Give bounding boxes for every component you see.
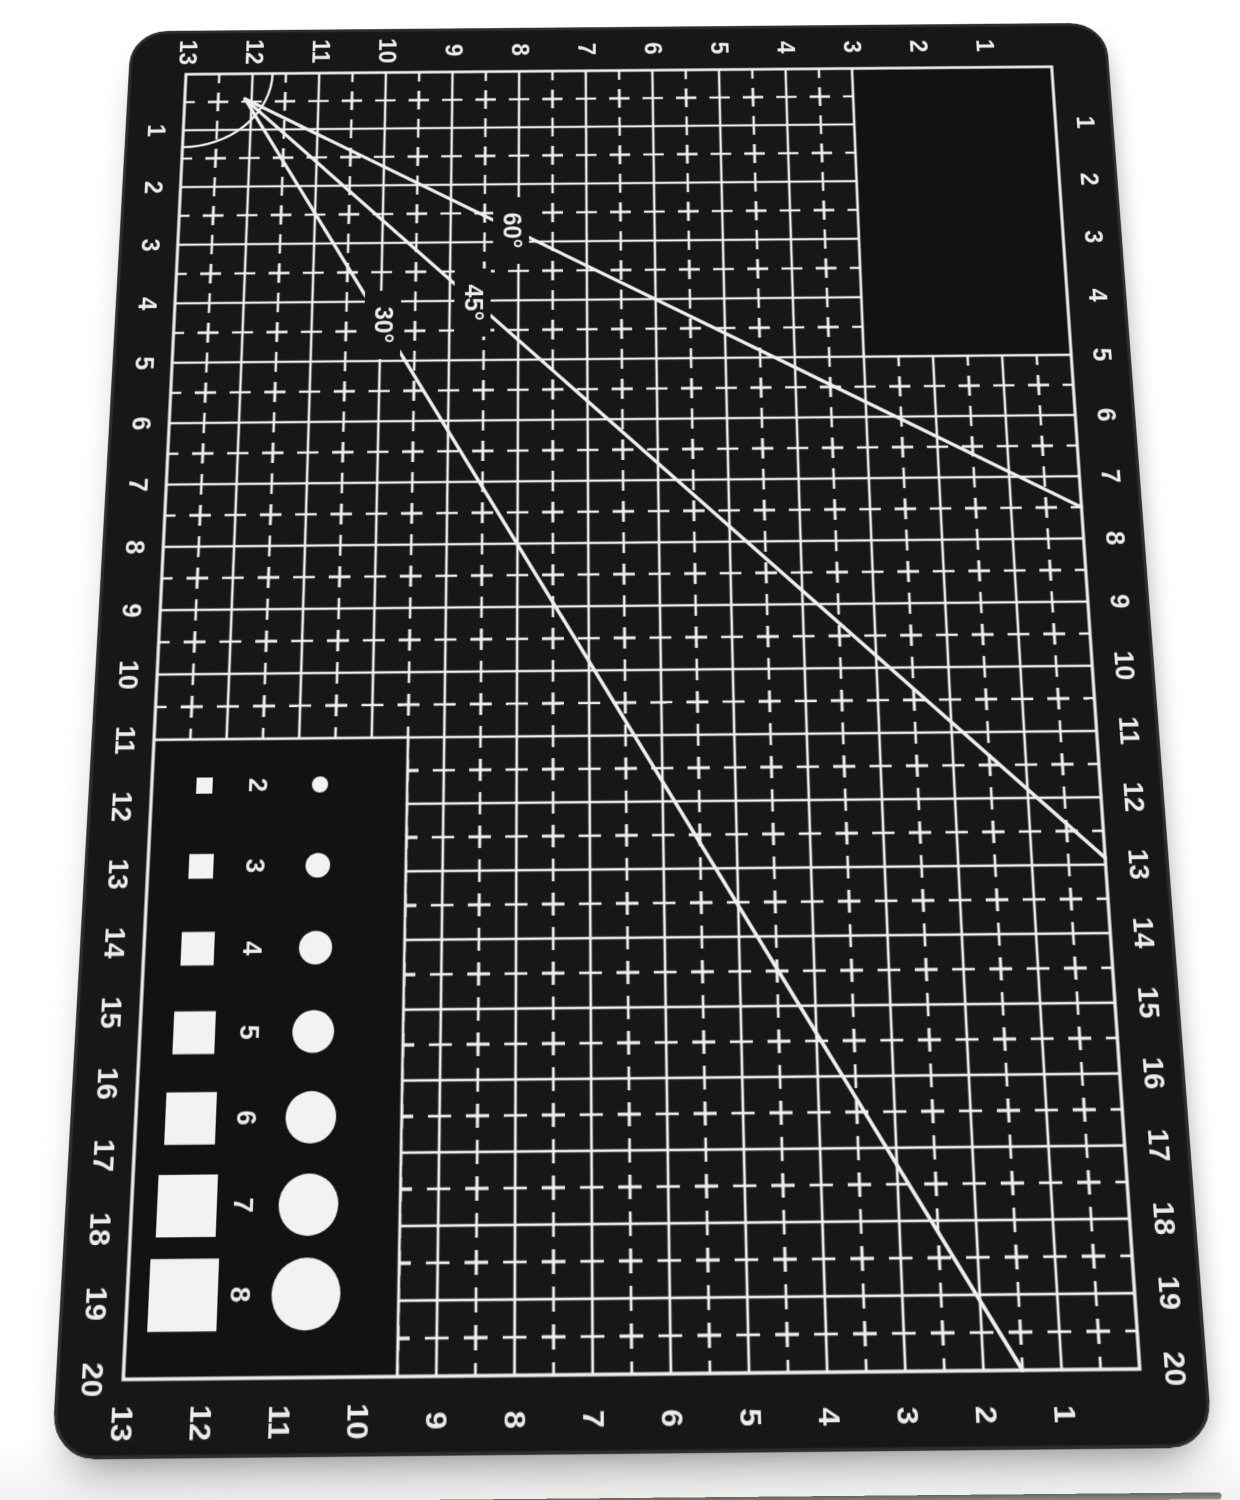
edge-number-top: 13 [173,40,201,65]
edge-number-top: 11 [306,39,334,63]
edge-number-bottom: 4 [811,1407,846,1426]
edge-number-right: 6 [1090,408,1119,422]
size-label: 7 [227,1197,258,1213]
square-sample-5 [172,1011,216,1054]
edge-number-right: 16 [1136,1057,1169,1090]
edge-number-bottom: 5 [733,1408,768,1427]
edge-number-top: 8 [506,43,533,56]
edge-number-top: 10 [373,38,401,63]
edge-number-left: 16 [90,1067,123,1100]
square-sample-2 [196,777,213,793]
edge-number-top: 6 [638,42,665,55]
edge-number-right: 19 [1151,1276,1185,1311]
edge-number-left: 17 [86,1139,119,1172]
angle-label-45: 45° [458,284,486,321]
edge-number-right: 20 [1156,1351,1190,1386]
edge-number-bottom: 11 [261,1405,297,1440]
edge-number-right: 8 [1099,531,1129,546]
edge-number-left: 15 [93,996,125,1028]
edge-number-right: 18 [1146,1201,1180,1235]
edge-number-left: 3 [135,238,164,251]
edge-number-bottom: 9 [418,1411,453,1430]
edge-number-right: 1 [1070,116,1098,129]
edge-number-left: 18 [82,1212,115,1246]
edge-number-bottom: 12 [182,1405,218,1442]
size-label: 6 [230,1110,260,1125]
edge-number-right: 10 [1107,651,1138,681]
edge-number-bottom: 2 [968,1406,1003,1425]
edge-number-left: 1 [141,124,169,137]
edge-number-left: 13 [101,859,133,890]
edge-number-bottom: 10 [339,1403,374,1440]
square-sample-8 [147,1258,219,1332]
edge-number-left: 2 [138,181,166,194]
edge-number-left: 14 [97,927,129,960]
edge-number-right: 5 [1086,348,1115,362]
edge-number-bottom: 7 [576,1410,611,1429]
angle-label-30: 30° [368,306,397,343]
edge-number-left: 5 [129,356,158,370]
edge-number-bottom: 3 [890,1406,925,1425]
edge-number-left: 6 [126,416,155,430]
edge-number-right: 4 [1082,288,1111,302]
edge-number-left: 12 [105,791,137,822]
edge-number-right: 13 [1121,849,1153,880]
edge-number-bottom: 13 [103,1405,139,1442]
edge-number-left: 20 [74,1362,108,1397]
edge-number-bottom: 1 [1046,1405,1082,1424]
edge-number-left: 10 [112,660,143,690]
edge-number-top: 7 [572,43,599,56]
cutting-mat: 60°45°30°1312111098765432113121110987654… [51,23,1213,1460]
edge-number-right: 3 [1078,230,1107,243]
edge-number-bottom: 8 [497,1410,532,1429]
edge-number-top: 4 [771,41,799,54]
edge-number-top: 1 [970,39,998,52]
size-label: 2 [243,778,272,792]
edge-number-left: 8 [119,540,149,555]
edge-number-top: 12 [239,39,267,64]
square-sample-7 [156,1174,218,1237]
edge-number-right: 12 [1117,782,1149,813]
edge-number-left: 7 [122,478,152,492]
size-label: 4 [236,941,266,957]
size-label: 3 [240,859,270,874]
edge-number-left: 9 [115,603,145,618]
mat-thickness-edge [17,1492,1221,1500]
edge-number-top: 3 [837,40,865,53]
square-sample-6 [164,1092,217,1145]
edge-number-right: 17 [1141,1129,1175,1162]
edge-number-right: 7 [1095,469,1125,483]
blank-area-top-right [852,67,1071,357]
edge-number-right: 2 [1074,172,1103,185]
angle-label-60: 60° [497,212,525,248]
edge-number-right: 11 [1112,716,1144,745]
edge-number-top: 2 [904,40,932,53]
size-label: 5 [233,1025,263,1040]
edge-number-bottom: 6 [654,1409,689,1428]
square-sample-4 [180,932,214,966]
edge-number-left: 19 [78,1287,112,1322]
edge-number-right: 9 [1103,594,1133,609]
product-photo-background: 60°45°30°1312111098765432113121110987654… [0,0,1240,1500]
edge-number-right: 15 [1131,986,1164,1018]
edge-number-top: 5 [705,41,732,54]
size-label: 8 [224,1286,255,1302]
cutting-mat-3d-wrap: 60°45°30°1312111098765432113121110987654… [51,23,1213,1460]
edge-number-top: 9 [439,44,466,57]
square-sample-3 [188,854,214,879]
edge-number-left: 11 [108,726,139,755]
edge-number-right: 14 [1126,917,1159,950]
edge-number-left: 4 [132,297,161,311]
